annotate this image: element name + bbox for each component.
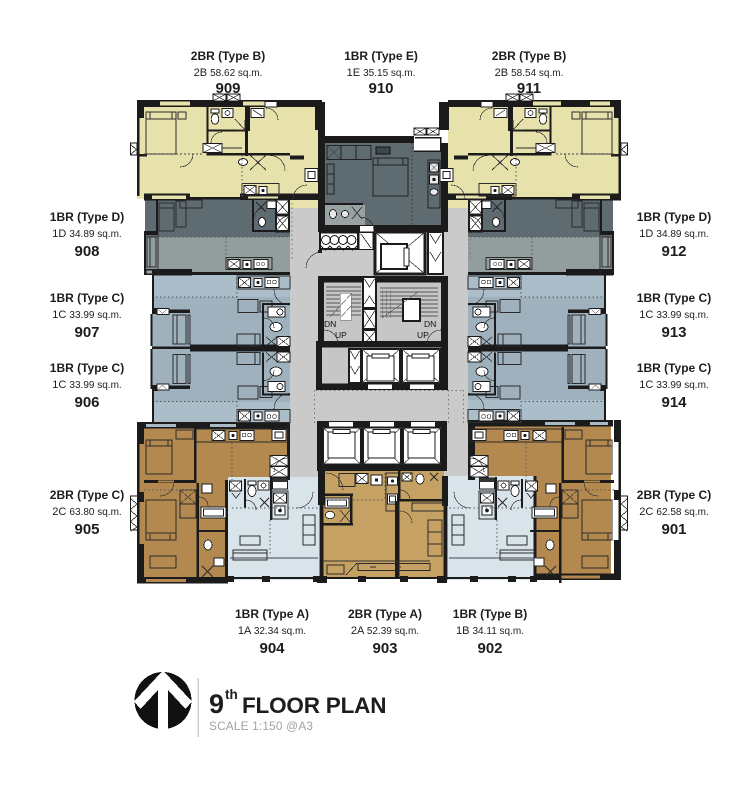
svg-text:1C 33.99 sq.m.: 1C 33.99 sq.m. <box>639 309 708 321</box>
svg-text:1B 34.11 sq.m.: 1B 34.11 sq.m. <box>456 625 524 637</box>
svg-text:909: 909 <box>215 80 240 97</box>
svg-text:903: 903 <box>372 640 397 657</box>
svg-text:1BR (Type D): 1BR (Type D) <box>50 210 124 224</box>
svg-text:FLOOR PLAN: FLOOR PLAN <box>242 693 386 718</box>
svg-text:1BR (Type E): 1BR (Type E) <box>344 49 418 63</box>
svg-text:1BR (Type C): 1BR (Type C) <box>637 291 711 305</box>
svg-text:1D 34.89 sq.m.: 1D 34.89 sq.m. <box>639 228 708 240</box>
svg-text:1BR (Type A): 1BR (Type A) <box>235 607 309 621</box>
svg-text:th: th <box>225 687 238 702</box>
svg-text:914: 914 <box>661 394 687 411</box>
svg-text:2BR (Type C): 2BR (Type C) <box>50 488 124 502</box>
svg-text:DN: DN <box>324 319 336 329</box>
svg-text:901: 901 <box>661 521 686 538</box>
svg-text:912: 912 <box>661 243 686 260</box>
svg-text:1C 33.99 sq.m.: 1C 33.99 sq.m. <box>639 379 708 391</box>
svg-text:2BR (Type B): 2BR (Type B) <box>492 49 566 63</box>
svg-text:1D 34.89 sq.m.: 1D 34.89 sq.m. <box>52 228 121 240</box>
svg-text:9: 9 <box>209 689 224 719</box>
svg-text:UP: UP <box>417 330 429 340</box>
svg-text:2BR (Type A): 2BR (Type A) <box>348 607 422 621</box>
svg-text:911: 911 <box>517 80 541 97</box>
svg-text:2B 58.54 sq.m.: 2B 58.54 sq.m. <box>495 67 564 79</box>
svg-text:906: 906 <box>74 394 99 411</box>
svg-text:908: 908 <box>74 243 99 260</box>
svg-text:1BR (Type B): 1BR (Type B) <box>453 607 527 621</box>
svg-text:1BR (Type C): 1BR (Type C) <box>50 291 124 305</box>
svg-text:2C 62.58 sq.m.: 2C 62.58 sq.m. <box>639 506 708 518</box>
svg-text:1C 33.99 sq.m.: 1C 33.99 sq.m. <box>52 309 121 321</box>
svg-text:905: 905 <box>74 521 99 538</box>
svg-text:907: 907 <box>74 324 99 341</box>
svg-text:2B 58.62 sq.m.: 2B 58.62 sq.m. <box>194 67 263 79</box>
svg-text:1BR (Type C): 1BR (Type C) <box>637 361 711 375</box>
svg-text:1C 33.99 sq.m.: 1C 33.99 sq.m. <box>52 379 121 391</box>
svg-text:2A 52.39 sq.m.: 2A 52.39 sq.m. <box>351 625 419 637</box>
svg-text:2BR (Type C): 2BR (Type C) <box>637 488 711 502</box>
svg-text:DN: DN <box>424 319 436 329</box>
svg-text:902: 902 <box>477 640 502 657</box>
svg-text:913: 913 <box>661 324 686 341</box>
svg-text:2C 63.80 sq.m.: 2C 63.80 sq.m. <box>52 506 121 518</box>
svg-text:2BR (Type B): 2BR (Type B) <box>191 49 265 63</box>
svg-text:904: 904 <box>259 640 285 657</box>
svg-text:1E 35.15 sq.m.: 1E 35.15 sq.m. <box>347 67 416 79</box>
svg-text:1BR (Type D): 1BR (Type D) <box>637 210 711 224</box>
svg-text:1A 32.34 sq.m.: 1A 32.34 sq.m. <box>238 625 306 637</box>
svg-text:910: 910 <box>368 80 393 97</box>
svg-text:SCALE 1:150 @A3: SCALE 1:150 @A3 <box>209 719 313 733</box>
svg-text:1BR (Type C): 1BR (Type C) <box>50 361 124 375</box>
